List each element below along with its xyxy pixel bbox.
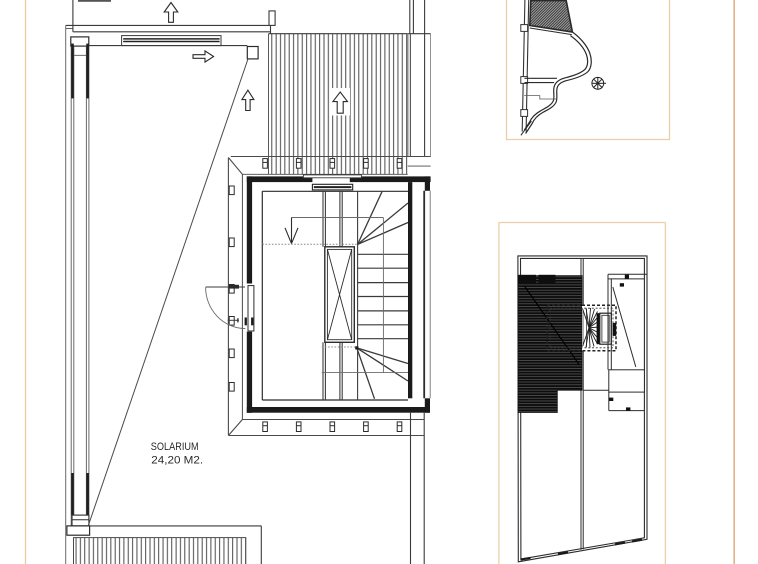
svg-text:SOLARIUM: SOLARIUM (151, 441, 199, 453)
svg-text:24,20 M2.: 24,20 M2. (151, 455, 203, 467)
